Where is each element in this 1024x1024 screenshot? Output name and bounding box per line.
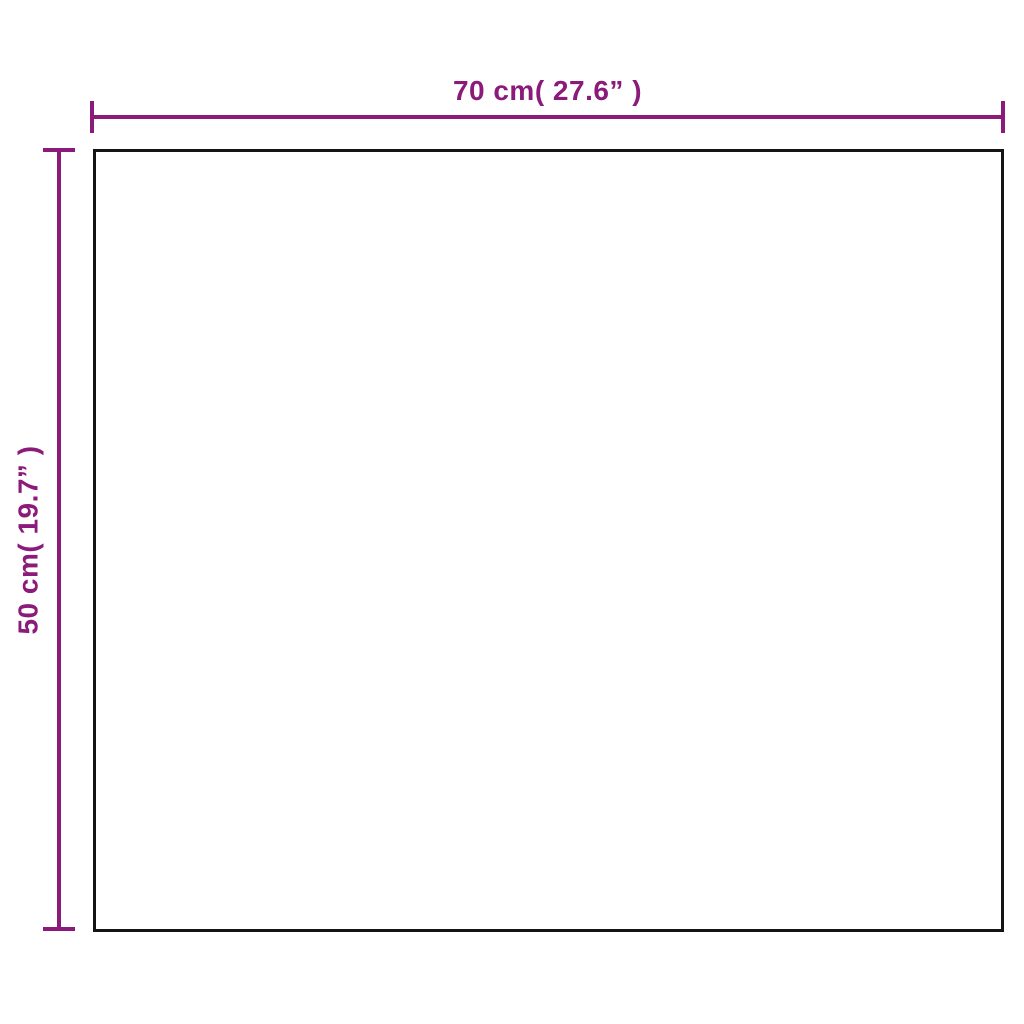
height-dimension-top-tick (43, 148, 75, 152)
height-dimension-bottom-tick (43, 927, 75, 931)
product-outline-rectangle (93, 149, 1004, 932)
width-dimension-right-tick (1001, 101, 1005, 133)
height-dimension-line (57, 150, 61, 930)
height-dimension-label: 50 cm( 19.7” ) (13, 445, 45, 634)
width-dimension-label: 70 cm( 27.6” ) (92, 70, 1003, 112)
dimension-diagram: 70 cm( 27.6” ) 50 cm( 19.7” ) (0, 0, 1024, 1024)
height-dimension-label-area: 50 cm( 19.7” ) (0, 150, 58, 930)
width-dimension-line (92, 115, 1003, 119)
width-dimension-left-tick (90, 101, 94, 133)
